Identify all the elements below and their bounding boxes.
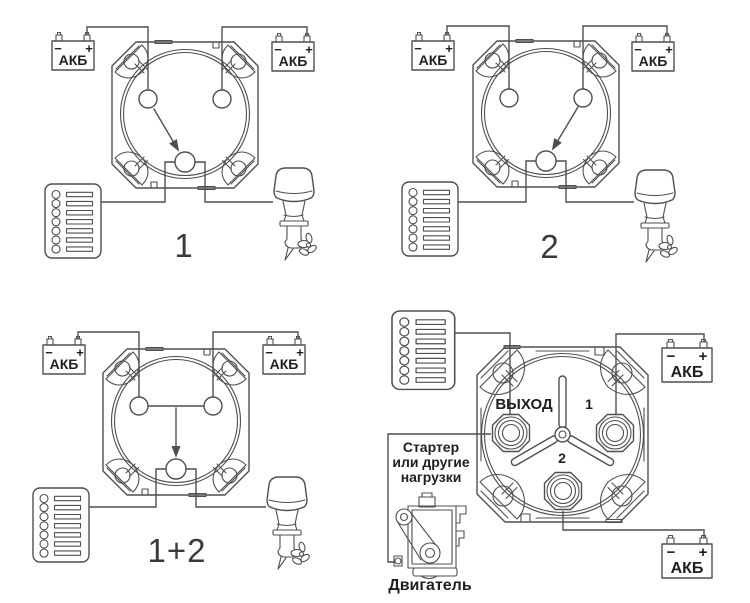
battery-label: АКБ [419, 52, 448, 68]
engine-label: Двигатель [388, 577, 472, 594]
arrow-position-1 [154, 109, 174, 143]
panel-detail: ВЫХОД 1 2 − + АКБ − + АКБ Стартер или др… [388, 311, 712, 594]
diagram-canvas: − + АКБ − + АКБ 1 − + АКБ − + АКБ 2 [0, 0, 750, 603]
terminal-1-label: 1 [585, 396, 593, 412]
starter-load-label: Стартер или другие нагрузки [392, 439, 469, 485]
outboard-motor-icon [635, 170, 679, 262]
svg-text:Стартер: Стартер [403, 439, 459, 455]
fuse-panel-icon [392, 311, 455, 389]
battery-label: АКБ [270, 356, 299, 372]
battery-label: АКБ [50, 356, 79, 372]
terminal-1 [130, 397, 148, 415]
terminal-2 [213, 90, 231, 108]
panel-caption-1: 1 [174, 227, 193, 264]
fuse-panel-icon [33, 488, 89, 562]
terminal-1 [139, 90, 157, 108]
outboard-motor-icon [267, 477, 311, 569]
panel-caption-1-2: 1+2 [148, 532, 207, 569]
arrow-position-2 [557, 107, 578, 142]
panel-caption-2: 2 [540, 228, 559, 265]
wire-terminal2-to-battery [563, 511, 704, 538]
battery-label: АКБ [671, 560, 704, 577]
terminal-2 [574, 89, 592, 107]
battery-minus-sign: − [667, 348, 676, 365]
panel-position-1-2: − + АКБ − + АКБ 1+2 [33, 332, 311, 569]
battery-1-terminal [597, 415, 634, 452]
wire-battery-left-to-switch [78, 332, 139, 397]
svg-text:или другие: или другие [392, 454, 469, 470]
output-label: ВЫХОД [495, 396, 553, 413]
fuse-panel-icon [402, 182, 458, 256]
outboard-motor-icon [274, 168, 318, 260]
battery-plus-sign: + [699, 544, 708, 561]
svg-text:нагрузки: нагрузки [401, 469, 462, 485]
terminal-2 [204, 397, 222, 415]
battery-label: АКБ [59, 52, 88, 68]
terminal-1 [500, 89, 518, 107]
panel-position-1: − + АКБ − + АКБ 1 [45, 27, 318, 264]
battery-label: АКБ [671, 364, 704, 381]
terminal-common [166, 459, 186, 479]
panel-position-2: − + АКБ − + АКБ 2 [402, 26, 679, 265]
fuse-panel-icon [45, 184, 101, 258]
terminal-common [536, 151, 556, 171]
battery-2-terminal [545, 473, 582, 510]
battery-minus-sign: − [667, 544, 676, 561]
terminal-common [175, 152, 195, 172]
battery-label: АКБ [639, 53, 668, 69]
battery-plus-sign: + [699, 348, 708, 365]
battery-label: АКБ [279, 53, 308, 69]
output-terminal [493, 415, 530, 452]
battery-switch-wiring-diagram: − + АКБ − + АКБ 1 − + АКБ − + АКБ 2 [0, 0, 750, 603]
engine-icon [394, 493, 466, 579]
terminal-2-label: 2 [558, 450, 566, 466]
